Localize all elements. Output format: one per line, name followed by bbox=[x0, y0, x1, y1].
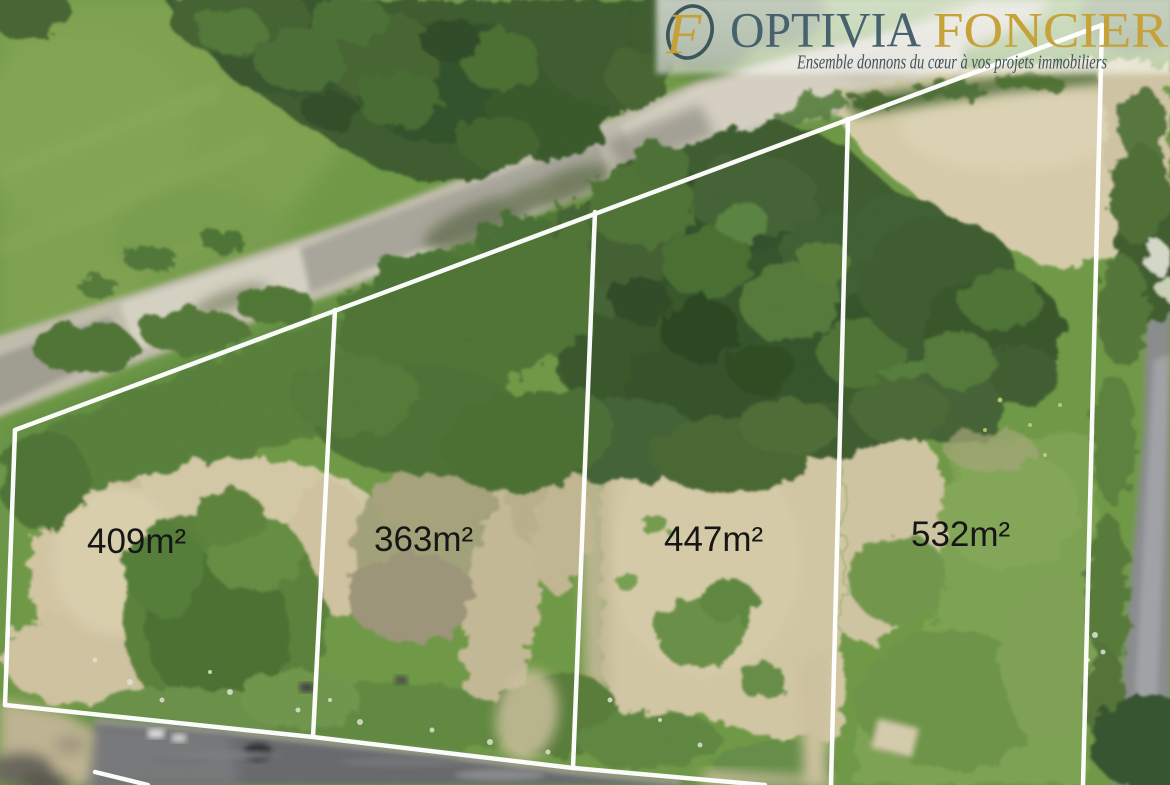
svg-text:447m²: 447m² bbox=[664, 520, 763, 559]
svg-text:FONCIER: FONCIER bbox=[933, 2, 1169, 58]
svg-text:409m²: 409m² bbox=[87, 522, 186, 561]
svg-text:Ensemble donnons du cœur à vos: Ensemble donnons du cœur à vos projets i… bbox=[796, 52, 1107, 74]
svg-text:532m²: 532m² bbox=[911, 515, 1010, 554]
svg-text:F: F bbox=[665, 1, 702, 66]
svg-text:363m²: 363m² bbox=[374, 520, 473, 559]
svg-text:OPTIVIA: OPTIVIA bbox=[730, 2, 921, 58]
